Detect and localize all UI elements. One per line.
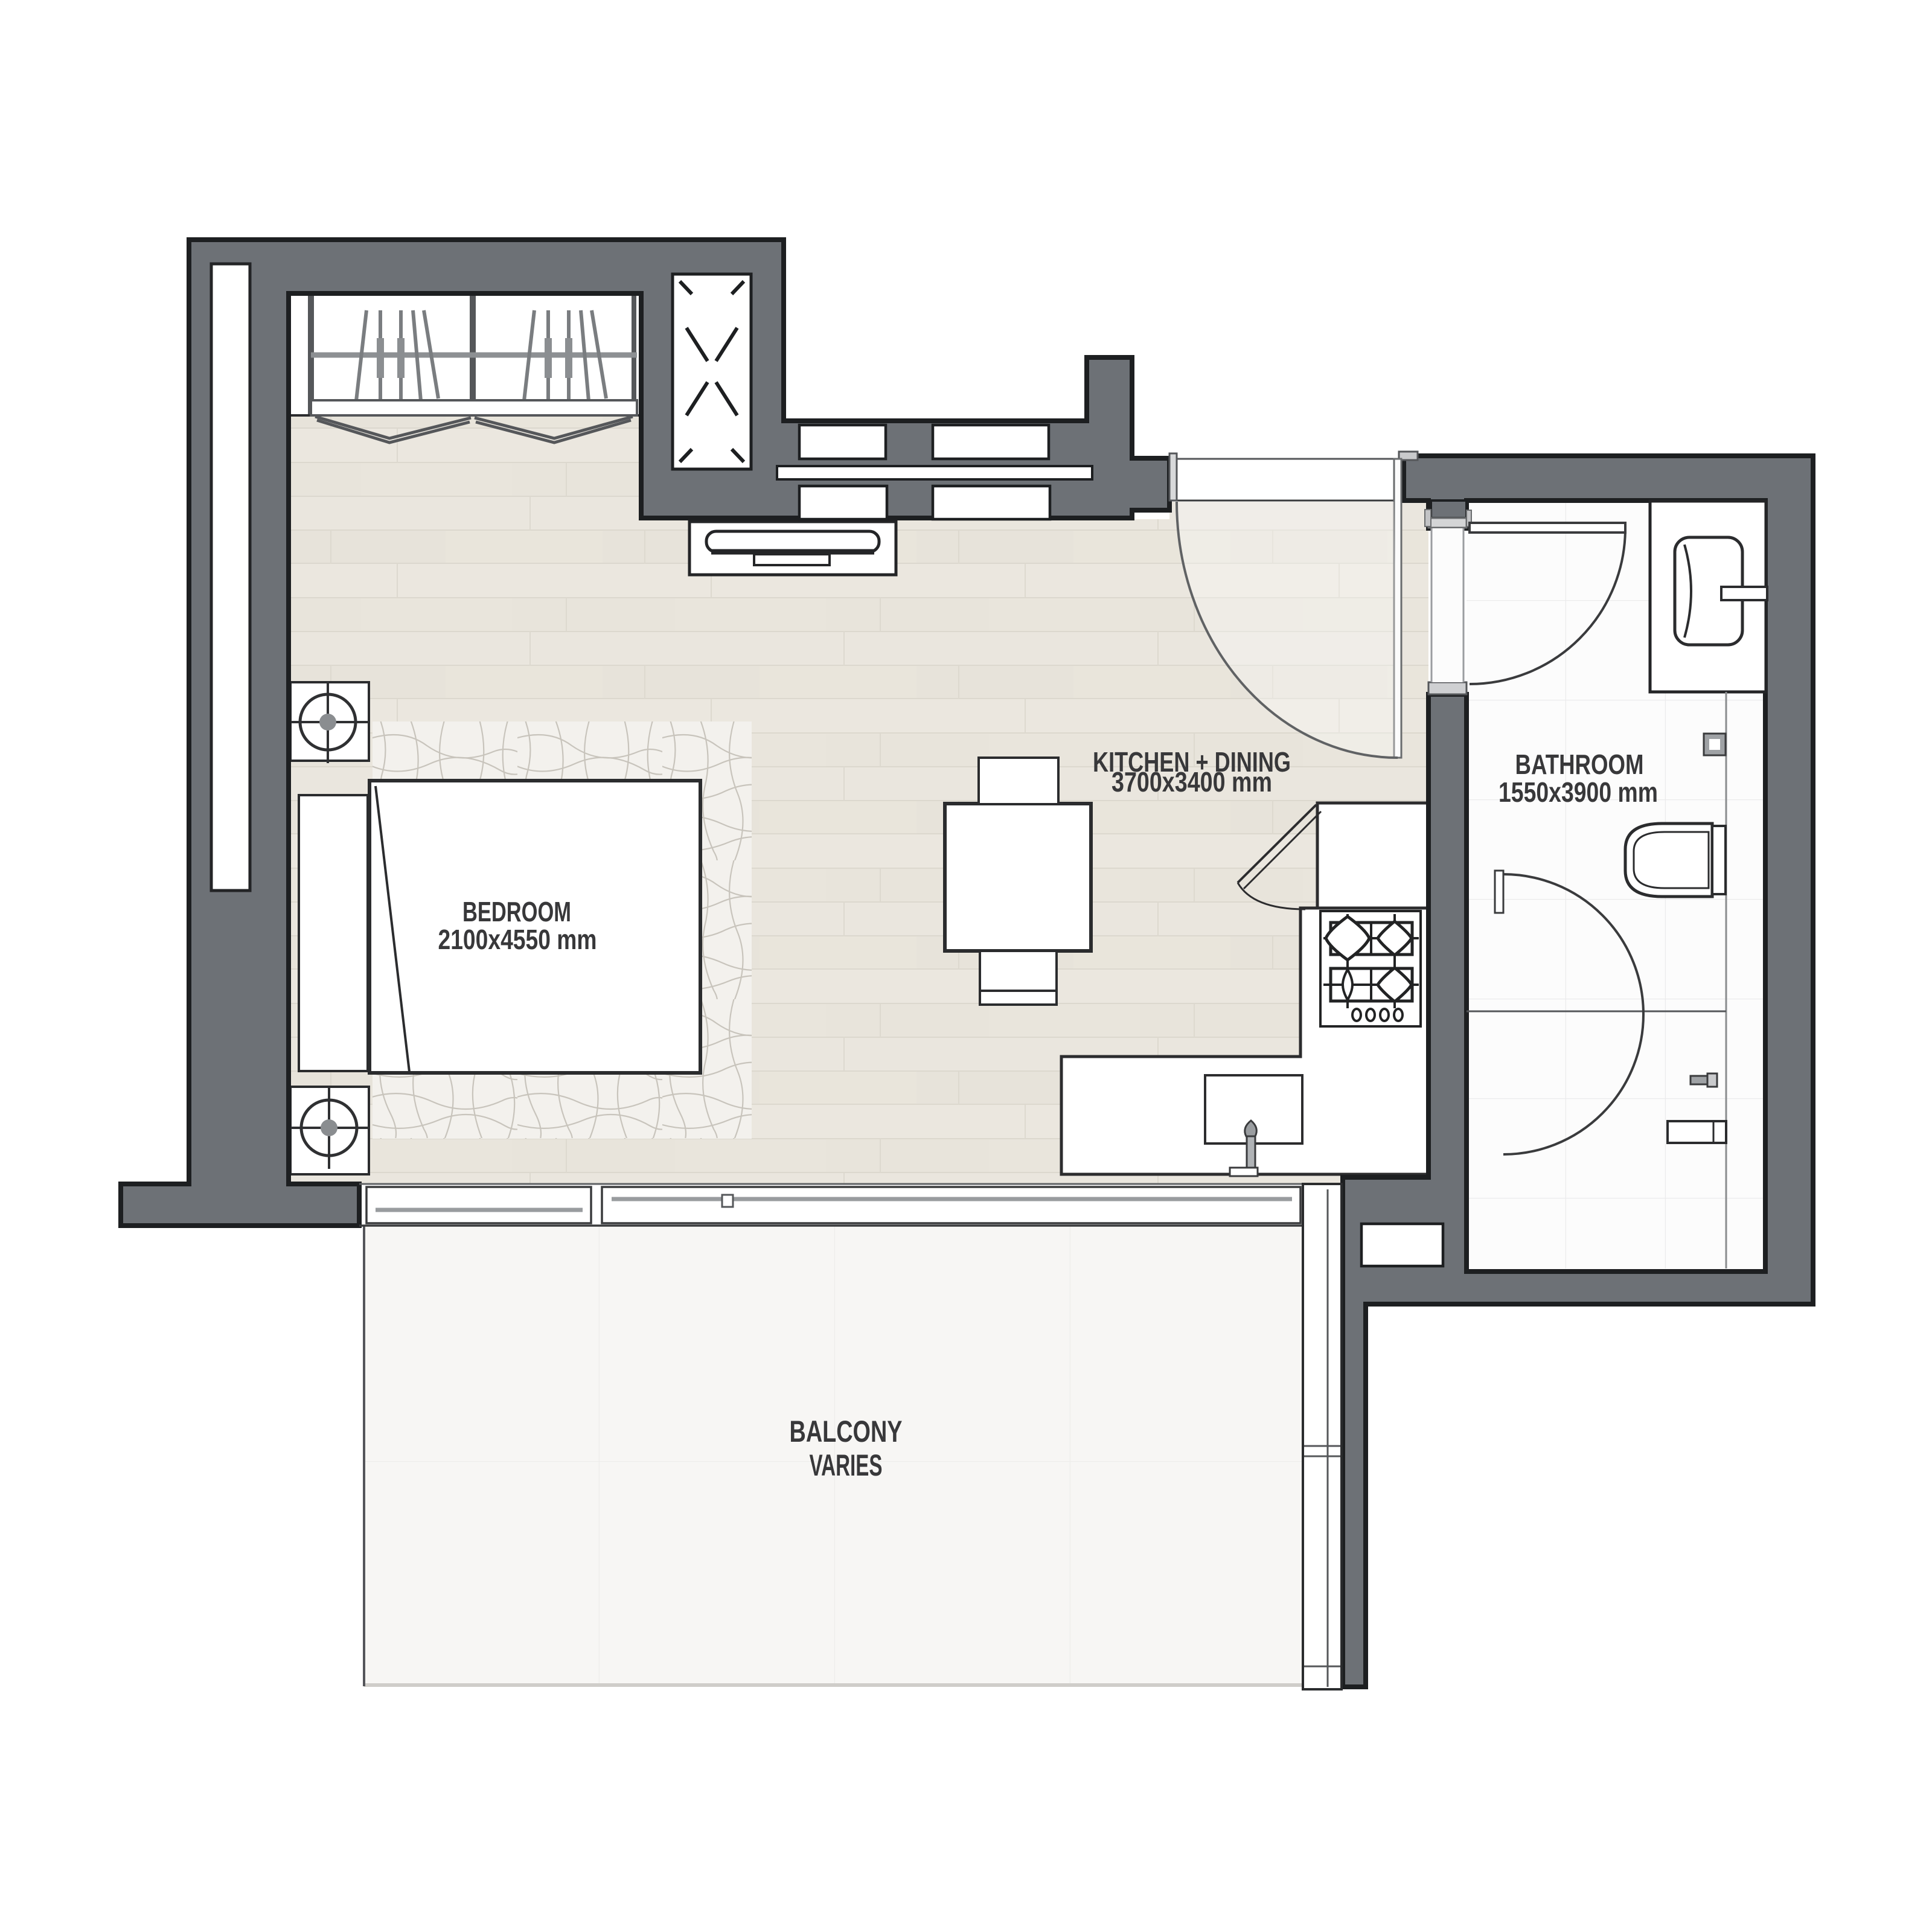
svg-text:2100x4550 mm: 2100x4550 mm xyxy=(438,924,597,955)
svg-text:VARIES: VARIES xyxy=(810,1448,883,1482)
svg-text:BATHROOM: BATHROOM xyxy=(1515,749,1644,780)
svg-text:3700x3400 mm: 3700x3400 mm xyxy=(1112,766,1272,798)
svg-text:1550x3900 mm: 1550x3900 mm xyxy=(1499,776,1658,808)
svg-text:BALCONY: BALCONY xyxy=(790,1415,903,1448)
svg-text:BEDROOM: BEDROOM xyxy=(462,896,571,927)
